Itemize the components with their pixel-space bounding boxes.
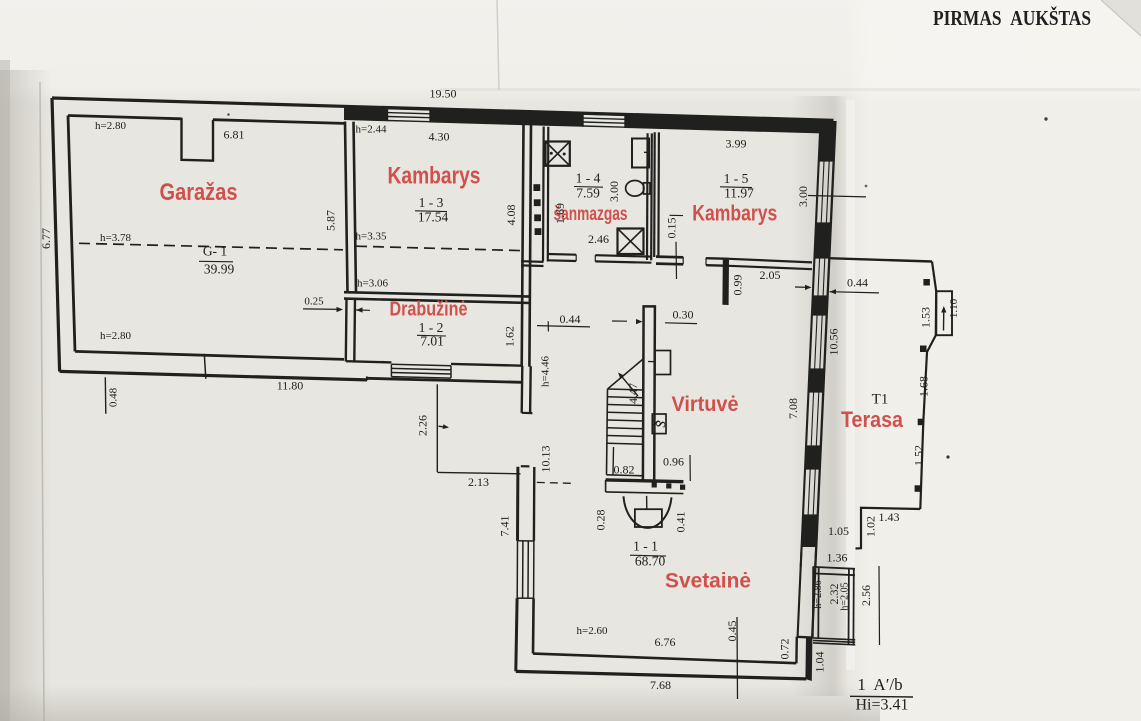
- svg-text:2.56: 2.56: [859, 585, 873, 606]
- svg-text:0.41: 0.41: [673, 512, 687, 533]
- svg-text:1 - 3: 1 - 3: [419, 195, 444, 210]
- svg-text:1.04: 1.04: [812, 652, 826, 673]
- svg-text:Drabužinė: Drabužinė: [390, 298, 468, 320]
- svg-text:4.30: 4.30: [429, 129, 450, 143]
- svg-text:1.05: 1.05: [828, 524, 849, 538]
- svg-text:11.97: 11.97: [724, 186, 754, 201]
- svg-text:1.62: 1.62: [502, 326, 516, 347]
- svg-text:2.26: 2.26: [415, 415, 429, 436]
- svg-text:h=2.44: h=2.44: [356, 124, 387, 136]
- svg-text:3.00: 3.00: [607, 181, 621, 202]
- svg-text:h=4.46: h=4.46: [540, 356, 552, 387]
- svg-text:0.96: 0.96: [663, 454, 684, 468]
- svg-text:39.99: 39.99: [204, 262, 235, 277]
- svg-text:h=2.80: h=2.80: [100, 330, 131, 342]
- svg-text:h=2.05: h=2.05: [839, 582, 850, 610]
- svg-text:0.30: 0.30: [673, 307, 694, 321]
- svg-text:1 - 5: 1 - 5: [724, 171, 749, 186]
- svg-text:1.36: 1.36: [827, 550, 848, 564]
- svg-text:11.80: 11.80: [277, 378, 304, 392]
- svg-text:0.82: 0.82: [614, 462, 635, 476]
- svg-text:Kambarys: Kambarys: [388, 162, 481, 189]
- svg-text:10.56: 10.56: [826, 329, 840, 356]
- svg-text:7.01: 7.01: [420, 334, 444, 349]
- svg-text:0.72: 0.72: [777, 639, 791, 660]
- svg-text:1 Aʹ/b: 1 Aʹ/b: [857, 675, 902, 694]
- svg-text:h=2.86: h=2.86: [813, 580, 824, 608]
- svg-text:h=3.78: h=3.78: [100, 232, 131, 244]
- svg-text:h=3.35: h=3.35: [356, 231, 387, 243]
- svg-text:1.69: 1.69: [553, 203, 567, 224]
- svg-text:1 - 1: 1 - 1: [633, 539, 658, 554]
- svg-text:T1: T1: [872, 391, 889, 407]
- svg-text:Hi=3.41: Hi=3.41: [855, 697, 908, 714]
- svg-text:3.99: 3.99: [726, 136, 747, 150]
- svg-text:G- 1: G- 1: [203, 244, 227, 259]
- svg-text:h=2.60: h=2.60: [577, 625, 608, 637]
- svg-text:7.59: 7.59: [576, 186, 600, 201]
- svg-text:0.15: 0.15: [664, 218, 678, 239]
- svg-text:1.53: 1.53: [918, 307, 932, 328]
- svg-text:1.43: 1.43: [879, 510, 900, 524]
- svg-text:1.68: 1.68: [916, 376, 930, 397]
- svg-text:7.68: 7.68: [650, 678, 671, 692]
- svg-text:0.44: 0.44: [847, 275, 868, 289]
- svg-text:0.28: 0.28: [593, 510, 607, 531]
- svg-text:7.41: 7.41: [497, 516, 511, 537]
- svg-text:19.50: 19.50: [430, 87, 457, 101]
- svg-text:68.70: 68.70: [635, 554, 666, 569]
- svg-text:6.81: 6.81: [224, 127, 245, 141]
- svg-text:h=3.06: h=3.06: [357, 278, 388, 290]
- svg-text:Svetainė: Svetainė: [665, 570, 751, 593]
- svg-text:6.77: 6.77: [39, 228, 53, 249]
- svg-text:5.87: 5.87: [323, 210, 337, 231]
- svg-text:0.44: 0.44: [560, 312, 581, 326]
- svg-text:10.13: 10.13: [538, 446, 552, 473]
- svg-text:PIRMAS AUKŠTAS: PIRMAS AUKŠTAS: [933, 6, 1091, 30]
- svg-text:1.10: 1.10: [948, 298, 960, 318]
- svg-text:2.05: 2.05: [760, 268, 781, 282]
- svg-text:2.13: 2.13: [468, 475, 489, 489]
- svg-text:4.08: 4.08: [504, 205, 518, 226]
- svg-text:Garažas: Garažas: [160, 179, 238, 206]
- svg-text:1.02: 1.02: [863, 516, 877, 537]
- svg-text:7.08: 7.08: [786, 398, 800, 419]
- svg-text:1.52: 1.52: [911, 445, 925, 466]
- svg-text:h=2.80: h=2.80: [95, 120, 126, 132]
- svg-text:6.76: 6.76: [655, 635, 676, 649]
- svg-text:Terasa: Terasa: [841, 407, 904, 432]
- svg-text:1 - 4: 1 - 4: [576, 171, 601, 186]
- svg-text:0.25: 0.25: [304, 296, 324, 308]
- svg-text:0.48: 0.48: [108, 387, 120, 407]
- svg-text:17.54: 17.54: [418, 210, 449, 225]
- svg-text:Virtuvė: Virtuvė: [672, 393, 739, 416]
- svg-text:4.47: 4.47: [626, 383, 640, 404]
- svg-text:2.46: 2.46: [588, 232, 609, 246]
- svg-text:Kambarys: Kambarys: [692, 201, 777, 226]
- svg-text:3.00: 3.00: [796, 186, 810, 207]
- svg-text:0.99: 0.99: [730, 275, 744, 296]
